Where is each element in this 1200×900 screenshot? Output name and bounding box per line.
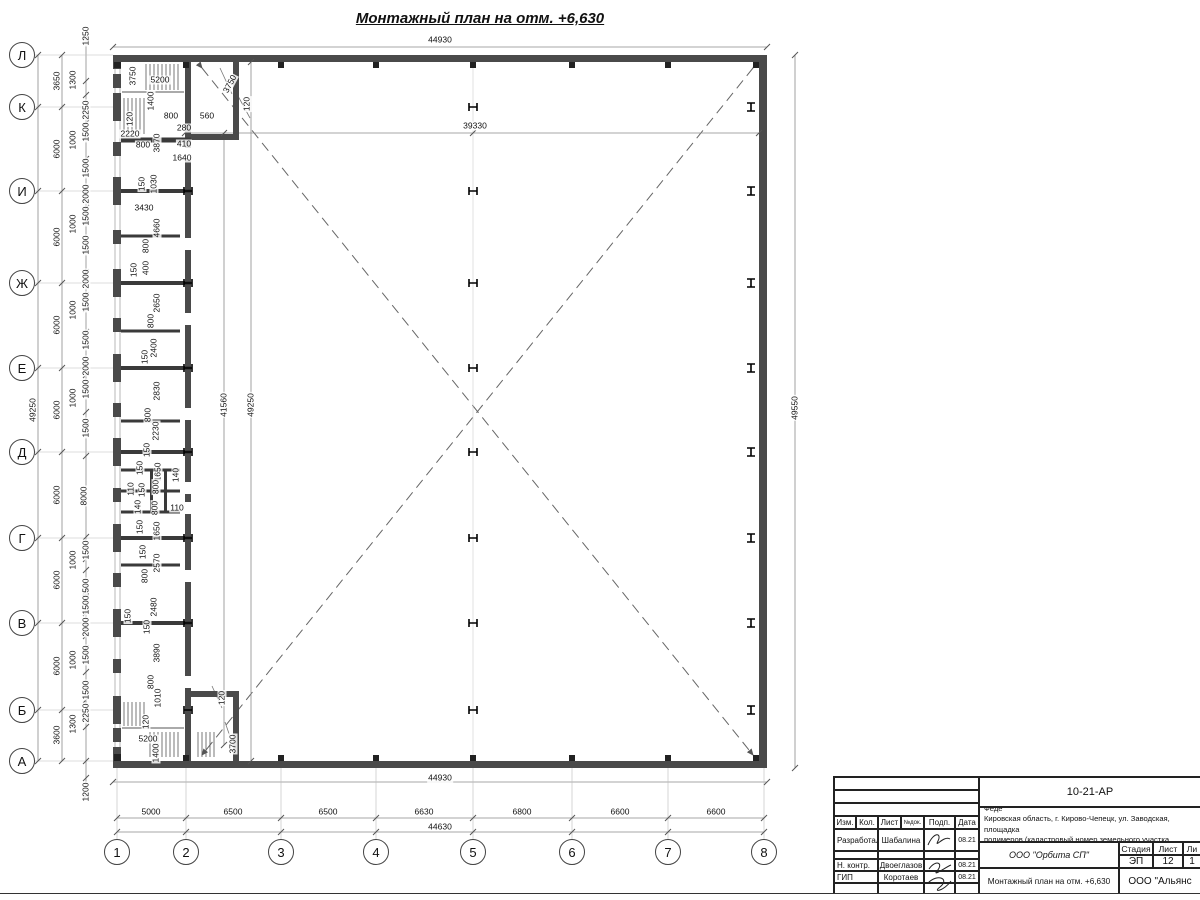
axis-bubble-Л: Л xyxy=(9,42,35,68)
col-header-list: Лист xyxy=(878,816,901,829)
drawing-sheet: Монтажный план на отм. +6,630 xyxy=(0,0,1200,900)
revision-row xyxy=(834,790,979,803)
dim-label: 140 xyxy=(134,499,143,515)
dim-label: 560 xyxy=(199,112,215,121)
dim-label: 800 xyxy=(135,141,151,150)
row-role-0: Разработал xyxy=(834,829,878,851)
dim-label: 6000 xyxy=(53,570,62,591)
dim-label: 4660 xyxy=(153,218,162,239)
dim-label: 110 xyxy=(127,481,136,497)
dim-label: 2650 xyxy=(153,293,162,314)
axis-bubble-Г: Г xyxy=(9,525,35,551)
dim-label: 41560 xyxy=(220,392,229,418)
dim-label: 2230 xyxy=(152,421,161,442)
dim-label: 140 xyxy=(172,467,181,483)
dim-label: 1500 xyxy=(82,122,91,143)
col-header-podp: Подп. xyxy=(924,816,955,829)
dim-label: 1250 xyxy=(82,26,91,47)
dim-label: 1500 xyxy=(82,418,91,439)
dim-label: 1500 xyxy=(82,292,91,313)
dim-label: 6000 xyxy=(53,139,62,160)
col-header-izm: Изм. xyxy=(834,816,856,829)
axis-bubble-3: 3 xyxy=(268,839,294,865)
axis-bubble-Б: Б xyxy=(9,697,35,723)
dim-label: 1500 xyxy=(82,680,91,701)
axis-bubble-Ж: Ж xyxy=(9,270,35,296)
dim-label: 150 xyxy=(138,176,147,192)
document-code: 10-21-АР xyxy=(979,777,1200,807)
dim-label: 150 xyxy=(138,482,147,498)
dim-label: 2250 xyxy=(82,100,91,121)
dim-label: 3700 xyxy=(229,734,238,755)
dim-label: 2250 xyxy=(82,703,91,724)
dim-label: 3600 xyxy=(53,725,62,746)
dim-label: 1500 xyxy=(82,645,91,666)
dim-label: 6500 xyxy=(318,808,339,817)
title-block: Изм. Кол. Лист №док. Подп. Дата Разработ… xyxy=(833,776,1200,893)
dim-label: 44930 xyxy=(427,774,453,783)
axis-bubble-4: 4 xyxy=(363,839,389,865)
dim-label: 1650 xyxy=(153,521,162,542)
desc-line-2: Кировская область, г. Кирово-Чепецк, ул.… xyxy=(984,814,1200,835)
row-date-1: 08.21 xyxy=(955,859,979,871)
dim-label: 120 xyxy=(126,111,135,127)
dim-label: 400 xyxy=(142,260,151,276)
row-name-1: Двоеглазов xyxy=(878,859,924,871)
dim-label: 1030 xyxy=(150,174,159,195)
sheet-label: Лист xyxy=(1153,842,1183,855)
row-name-2: Коротаев xyxy=(878,871,924,883)
dim-label: 800 xyxy=(142,238,151,254)
revision-row xyxy=(834,777,979,790)
project-description: Здание склада АБК, расположенное по адре… xyxy=(979,807,1200,842)
axis-bubble-Д: Д xyxy=(9,439,35,465)
row-date-2: 08.21 xyxy=(955,871,979,883)
dim-label: 2000 xyxy=(82,184,91,205)
dim-label: 2480 xyxy=(150,597,159,618)
dim-label: 110 xyxy=(169,504,185,513)
dim-label: 3750 xyxy=(129,66,138,87)
dim-label: 1500 xyxy=(82,595,91,616)
dim-label: 6000 xyxy=(53,315,62,336)
dim-label: 120 xyxy=(218,690,227,706)
company-name: ООО "Альянс xyxy=(1119,868,1200,894)
dim-label: 1010 xyxy=(154,688,163,709)
dim-label: 1000 xyxy=(69,130,78,151)
axis-bubble-8: 8 xyxy=(751,839,777,865)
row-role-1: Н. контр. xyxy=(834,859,878,871)
dim-label: 800 xyxy=(147,313,156,329)
dim-label: 3890 xyxy=(153,643,162,664)
axis-bubble-1: 1 xyxy=(104,839,130,865)
col-header-doc: №док. xyxy=(901,816,924,829)
dim-label: 5200 xyxy=(150,76,171,85)
dim-label: 1000 xyxy=(69,550,78,571)
dim-label: 6600 xyxy=(610,808,631,817)
dim-label: 44930 xyxy=(427,36,453,45)
stage-value: ЭП xyxy=(1119,855,1153,868)
dim-label: 800 xyxy=(163,112,179,121)
dim-label: 2830 xyxy=(153,381,162,402)
dim-label: 1000 xyxy=(69,650,78,671)
dim-label: 6000 xyxy=(53,485,62,506)
dim-label: 6500 xyxy=(223,808,244,817)
dim-label: 3430 xyxy=(134,204,155,213)
dim-label: 1500 xyxy=(82,379,91,400)
stage-label: Стадия xyxy=(1119,842,1153,855)
dim-label: 1640 xyxy=(172,154,193,163)
dim-label: 6000 xyxy=(53,227,62,248)
dim-label: 8000 xyxy=(80,486,89,507)
axis-bubble-5: 5 xyxy=(460,839,486,865)
dim-label: 120 xyxy=(142,714,151,730)
dim-label: 150 xyxy=(141,349,150,365)
dim-label: 49550 xyxy=(791,395,800,421)
sheet-frame-line xyxy=(0,893,1200,894)
dim-label: 1500 xyxy=(82,330,91,351)
dim-label: 3870 xyxy=(153,133,162,154)
dim-label: 1400 xyxy=(147,91,156,112)
dim-label: 2400 xyxy=(150,338,159,359)
dim-label: 1500 xyxy=(82,540,91,561)
dim-label: 800 xyxy=(141,568,150,584)
dim-label: 1000 xyxy=(69,214,78,235)
revision-row xyxy=(834,803,979,816)
dim-label: 150 xyxy=(136,460,145,476)
dim-label: 49250 xyxy=(29,397,38,423)
dim-label: 6600 xyxy=(706,808,727,817)
drawing-title: Монтажный план на отм. +6,630 xyxy=(979,868,1119,894)
dim-label: 2000 xyxy=(82,617,91,638)
dim-label: 150 xyxy=(143,442,152,458)
dim-label: 150 xyxy=(143,619,152,635)
dim-label: 1400 xyxy=(152,743,161,764)
org-name: ООО "Орбита СП" xyxy=(979,842,1119,868)
axis-bubble-2: 2 xyxy=(173,839,199,865)
dim-label: 5000 xyxy=(141,808,162,817)
row-empty xyxy=(878,851,924,859)
dim-label: 1500 xyxy=(82,206,91,227)
dim-label: 2570 xyxy=(153,553,162,574)
desc-line-1: Здание склада АБК, расположенное по адре… xyxy=(984,807,1200,814)
dim-label: 1500 xyxy=(82,158,91,179)
dim-label: 6000 xyxy=(53,656,62,677)
dim-label: 150 xyxy=(136,519,145,535)
dim-label: 280 xyxy=(176,124,192,133)
dim-label: 1500 xyxy=(82,235,91,256)
sheets-value: 1 xyxy=(1183,855,1200,868)
col-header-data: Дата xyxy=(955,816,979,829)
dim-label: 49250 xyxy=(247,392,256,418)
signatures xyxy=(924,829,955,894)
col-header-kol: Кол. xyxy=(856,816,878,829)
dim-label: 800 xyxy=(152,479,161,495)
sheets-label: Ли xyxy=(1183,842,1200,855)
sheet-value: 12 xyxy=(1153,855,1183,868)
dim-label: 1300 xyxy=(69,714,78,735)
dim-label: 6000 xyxy=(53,400,62,421)
dim-label: 44630 xyxy=(427,823,453,832)
dim-label: 1200 xyxy=(82,782,91,803)
dim-label: 6800 xyxy=(512,808,533,817)
dim-label: 150 xyxy=(139,544,148,560)
dim-label: 39330 xyxy=(462,122,488,131)
plan-generated xyxy=(0,0,1200,900)
axis-bubble-В: В xyxy=(9,610,35,636)
dim-label: 410 xyxy=(176,140,192,149)
dim-label: 150 xyxy=(130,262,139,278)
axis-bubble-7: 7 xyxy=(655,839,681,865)
row-empty xyxy=(834,851,878,859)
row-date-0: 08.21 xyxy=(955,829,979,851)
dim-label: 3650 xyxy=(53,71,62,92)
dim-label: 6630 xyxy=(414,808,435,817)
dim-label: 1000 xyxy=(69,300,78,321)
axis-bubble-А: А xyxy=(9,748,35,774)
row-role-2: ГИП xyxy=(834,871,878,883)
desc-line-3: полимеров (кадастровый номер земельного … xyxy=(984,835,1200,842)
axis-bubble-6: 6 xyxy=(559,839,585,865)
dim-label: 1300 xyxy=(69,70,78,91)
axis-bubble-Е: Е xyxy=(9,355,35,381)
dim-label: 120 xyxy=(243,96,252,112)
dim-label: 150 xyxy=(124,608,133,624)
dim-label: 2220 xyxy=(120,130,141,139)
axis-bubble-К: К xyxy=(9,94,35,120)
dim-label: 2000 xyxy=(82,269,91,290)
dim-label: 1000 xyxy=(69,388,78,409)
dim-label: 2000 xyxy=(82,356,91,377)
dim-label: 800 xyxy=(151,500,160,516)
row-name-0: Шабалина xyxy=(878,829,924,851)
axis-bubble-И: И xyxy=(9,178,35,204)
row-empty xyxy=(955,851,979,859)
